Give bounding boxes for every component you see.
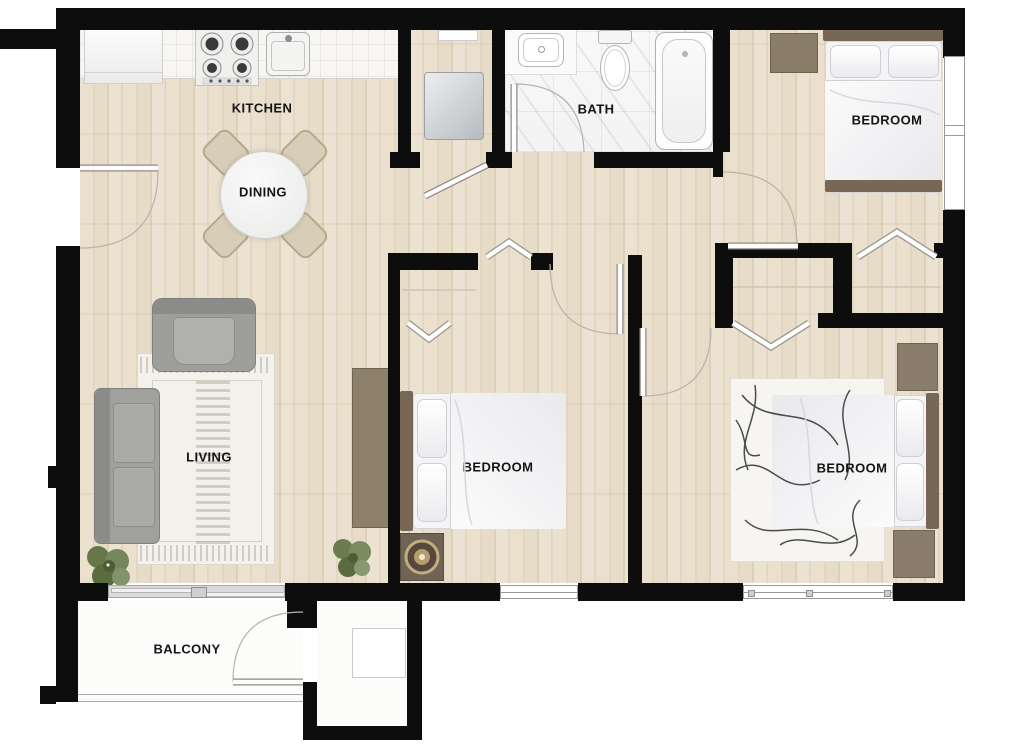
room-label-kitchen: KITCHEN xyxy=(232,101,293,116)
sofa xyxy=(94,388,160,544)
wall-top xyxy=(56,8,965,30)
closet-shelf xyxy=(438,30,478,41)
room-label-balcony: BALCONY xyxy=(153,642,220,657)
nightstand xyxy=(897,343,938,391)
toilet-seat xyxy=(604,49,626,87)
pillow xyxy=(830,45,881,78)
wall-ext-bottom xyxy=(303,726,422,740)
wall-closet1-right xyxy=(833,258,852,315)
pillow xyxy=(888,45,939,78)
wall-left-upper xyxy=(56,8,80,168)
potted-plant xyxy=(331,536,377,582)
wall-bedroom-divider xyxy=(628,255,642,583)
media-console xyxy=(352,368,390,528)
wall-balcony-stub xyxy=(287,598,317,628)
wall-left-lower xyxy=(56,246,80,583)
wall-tab-balcony-foot xyxy=(40,686,56,704)
wall-closet2-stub xyxy=(934,243,943,258)
balcony-railing xyxy=(78,694,303,702)
bed-headboard xyxy=(926,393,939,529)
pillow xyxy=(417,399,447,458)
wall-bottom-2 xyxy=(285,583,500,601)
rug-fringe-bottom xyxy=(140,545,272,561)
window-handle xyxy=(884,590,891,597)
sofa-cushion xyxy=(113,467,155,527)
room-label-living: LIVING xyxy=(186,450,232,465)
sink-basin xyxy=(271,41,305,71)
wall-closet1-top xyxy=(715,243,852,258)
sliding-panel xyxy=(111,588,199,593)
pillow xyxy=(896,399,924,457)
window-crossbar xyxy=(501,592,577,593)
wall-bottom-3 xyxy=(578,583,743,601)
bed-footboard xyxy=(825,180,942,192)
window-right-bottom-bedroom xyxy=(743,585,893,599)
sofa-back xyxy=(95,389,110,543)
sofa-cushion xyxy=(113,403,155,463)
wall-bath-left-foot xyxy=(486,152,512,168)
storage-box xyxy=(352,628,406,678)
window-handle xyxy=(748,590,755,597)
wall-closet2-bottom xyxy=(818,313,943,328)
bed-duvet xyxy=(825,80,942,181)
room-label-bath: BATH xyxy=(578,102,615,117)
sliding-glass-door xyxy=(108,585,285,598)
wall-midbed-top-stub xyxy=(531,253,553,270)
wall-midbed-top xyxy=(388,253,478,270)
refrigerator xyxy=(84,27,163,84)
armchair xyxy=(152,298,256,372)
wall-utility-left-foot xyxy=(390,152,420,168)
bed-headboard xyxy=(400,391,413,531)
pillow xyxy=(417,463,447,522)
bathroom-sink xyxy=(518,33,564,67)
wall-utility-left xyxy=(398,30,411,152)
nightstand xyxy=(893,530,935,578)
wall-utility-right xyxy=(492,30,505,152)
wall-tab-top-left xyxy=(0,29,56,49)
wall-right-lower xyxy=(943,210,965,601)
kitchen-sink xyxy=(266,32,310,76)
wall-midbed-left xyxy=(388,270,400,583)
wall-closet1-left xyxy=(715,258,733,328)
window-crossbar xyxy=(744,592,892,593)
room-label-dining: DINING xyxy=(239,185,287,200)
floor-speaker xyxy=(400,533,444,581)
pillow xyxy=(896,463,924,521)
window-right-bedroom xyxy=(944,56,965,210)
gas-stove xyxy=(195,28,259,86)
wall-bottom-4 xyxy=(893,583,965,601)
toilet-bowl xyxy=(600,45,630,91)
wall-bottom-1 xyxy=(56,583,108,601)
faucet-icon xyxy=(538,46,545,53)
wall-bath-bottom xyxy=(594,152,717,168)
armchair-cushion xyxy=(173,317,235,365)
wall-bath-right xyxy=(713,30,730,152)
room-label-bedroom-top: BEDROOM xyxy=(852,113,923,128)
bathtub xyxy=(655,32,713,150)
window-handle xyxy=(806,590,813,597)
faucet-icon xyxy=(285,35,292,42)
room-label-bedroom-right: BEDROOM xyxy=(817,461,888,476)
room-label-bedroom-middle: BEDROOM xyxy=(463,460,534,475)
wall-right-upper xyxy=(943,8,965,58)
wall-tab-left-step xyxy=(48,466,56,488)
toilet-tank xyxy=(598,30,632,44)
wall-bedroom-entry-stub xyxy=(713,152,723,177)
wall-ext-right xyxy=(407,598,422,740)
window-middle-bedroom xyxy=(500,585,578,599)
floor-plan: KITCHEN DINING BATH LIVING BALCONY BEDRO… xyxy=(0,0,1024,751)
refrigerator-door-seam xyxy=(85,72,162,73)
door-handle xyxy=(191,587,207,598)
sliding-panel xyxy=(197,592,285,597)
drain-icon xyxy=(682,51,688,57)
armchair-back xyxy=(153,299,255,314)
washer xyxy=(424,72,484,140)
dresser xyxy=(770,33,818,73)
window-crossbar xyxy=(945,125,964,126)
window-crossbar xyxy=(945,135,964,136)
